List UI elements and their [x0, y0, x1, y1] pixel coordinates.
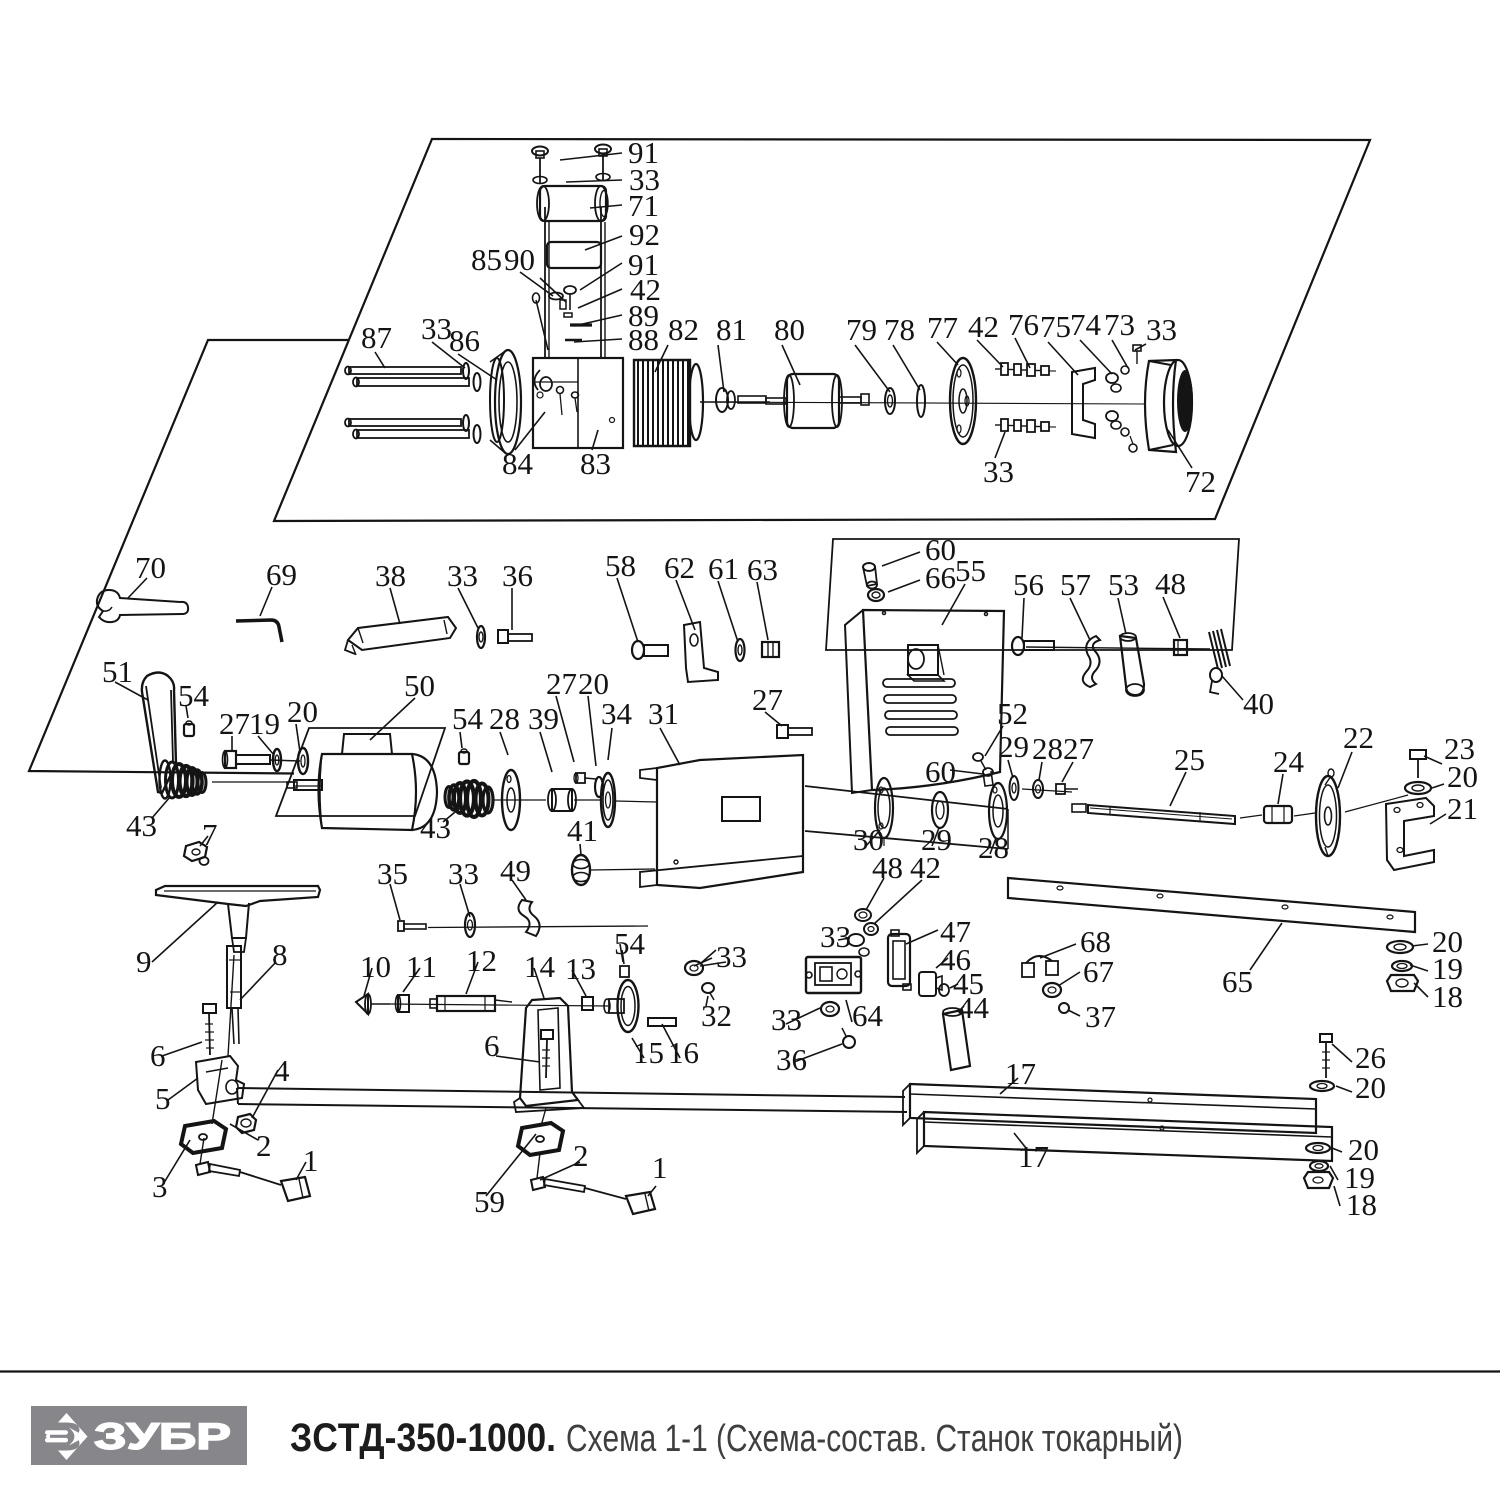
svg-text:90: 90: [504, 242, 535, 277]
svg-text:59: 59: [474, 1184, 505, 1219]
svg-text:27: 27: [752, 682, 783, 717]
svg-text:20: 20: [1447, 759, 1478, 794]
svg-text:ЗУБР: ЗУБР: [94, 1416, 231, 1457]
svg-text:27: 27: [1063, 731, 1094, 766]
svg-text:53: 53: [1108, 567, 1139, 602]
svg-text:5: 5: [155, 1081, 171, 1116]
svg-text:84: 84: [502, 446, 534, 481]
svg-text:54: 54: [452, 701, 484, 736]
svg-text:48: 48: [872, 850, 903, 885]
svg-text:15: 15: [633, 1035, 664, 1070]
svg-text:36: 36: [776, 1042, 807, 1077]
svg-text:34: 34: [601, 696, 633, 731]
svg-text:42: 42: [910, 850, 941, 885]
svg-text:33: 33: [1146, 312, 1177, 347]
svg-text:63: 63: [747, 552, 778, 587]
svg-text:77: 77: [927, 310, 958, 345]
svg-text:1: 1: [303, 1143, 319, 1178]
svg-text:16: 16: [668, 1035, 699, 1070]
svg-text:83: 83: [580, 446, 611, 481]
svg-text:8: 8: [272, 937, 288, 972]
svg-text:19: 19: [249, 706, 280, 741]
svg-text:28: 28: [489, 701, 520, 736]
svg-text:29: 29: [998, 729, 1029, 764]
svg-text:33: 33: [983, 454, 1014, 489]
svg-text:3: 3: [152, 1169, 168, 1204]
svg-text:35: 35: [377, 856, 408, 891]
svg-text:82: 82: [668, 312, 699, 347]
svg-text:40: 40: [1243, 686, 1274, 721]
svg-text:2: 2: [256, 1128, 272, 1163]
svg-text:56: 56: [1013, 567, 1044, 602]
svg-text:Схема 1-1 (Схема-состав. Стано: Схема 1-1 (Схема-состав. Станок токарный…: [566, 1418, 1183, 1460]
svg-text:48: 48: [1155, 566, 1186, 601]
svg-text:66: 66: [925, 560, 956, 595]
svg-text:60: 60: [925, 754, 956, 789]
svg-text:39: 39: [528, 701, 559, 736]
svg-text:69: 69: [266, 557, 297, 592]
svg-text:78: 78: [884, 312, 915, 347]
svg-text:43: 43: [126, 808, 157, 843]
svg-text:10: 10: [360, 949, 391, 984]
svg-text:62: 62: [664, 550, 695, 585]
svg-text:33: 33: [716, 939, 747, 974]
svg-text:24: 24: [1273, 744, 1305, 779]
svg-text:17: 17: [1018, 1139, 1049, 1174]
svg-text:7: 7: [202, 817, 218, 852]
svg-text:32: 32: [701, 998, 732, 1033]
svg-text:88: 88: [628, 322, 659, 357]
svg-text:79: 79: [846, 312, 877, 347]
svg-text:54: 54: [614, 926, 646, 961]
svg-text:33: 33: [820, 919, 851, 954]
svg-text:22: 22: [1343, 720, 1374, 755]
svg-text:28: 28: [978, 830, 1009, 865]
svg-text:61: 61: [708, 551, 739, 586]
svg-text:54: 54: [178, 678, 210, 713]
svg-text:13: 13: [565, 951, 596, 986]
svg-text:51: 51: [102, 654, 133, 689]
svg-text:9: 9: [136, 944, 152, 979]
svg-text:74: 74: [1070, 307, 1102, 342]
svg-text:64: 64: [852, 998, 884, 1033]
svg-text:27: 27: [546, 666, 577, 701]
svg-text:6: 6: [150, 1038, 166, 1073]
svg-text:75: 75: [1040, 309, 1071, 344]
svg-text:52: 52: [997, 696, 1028, 731]
svg-text:25: 25: [1174, 742, 1205, 777]
svg-text:55: 55: [955, 553, 986, 588]
svg-text:11: 11: [406, 949, 437, 984]
svg-text:33: 33: [771, 1002, 802, 1037]
svg-text:44: 44: [958, 990, 990, 1025]
svg-text:33: 33: [448, 856, 479, 891]
svg-text:86: 86: [449, 323, 480, 358]
svg-text:27: 27: [219, 706, 250, 741]
svg-text:37: 37: [1085, 999, 1116, 1034]
svg-text:42: 42: [968, 309, 999, 344]
svg-text:41: 41: [567, 813, 598, 848]
svg-text:87: 87: [361, 320, 392, 355]
svg-text:20: 20: [287, 694, 318, 729]
svg-text:14: 14: [524, 949, 556, 984]
svg-text:38: 38: [375, 558, 406, 593]
svg-text:31: 31: [648, 696, 679, 731]
svg-text:33: 33: [421, 311, 452, 346]
svg-text:17: 17: [1005, 1056, 1036, 1091]
svg-text:67: 67: [1083, 954, 1114, 989]
svg-text:ЗСТД-350-1000.: ЗСТД-350-1000.: [290, 1416, 556, 1460]
svg-text:18: 18: [1346, 1187, 1377, 1222]
svg-text:80: 80: [774, 312, 805, 347]
svg-text:49: 49: [500, 853, 531, 888]
svg-text:76: 76: [1008, 307, 1039, 342]
svg-text:1: 1: [652, 1150, 668, 1185]
svg-text:58: 58: [605, 548, 636, 583]
svg-text:2: 2: [573, 1138, 589, 1173]
svg-text:12: 12: [466, 943, 497, 978]
svg-text:50: 50: [404, 668, 435, 703]
svg-text:81: 81: [716, 312, 747, 347]
svg-text:18: 18: [1432, 979, 1463, 1014]
svg-text:4: 4: [274, 1053, 290, 1088]
svg-text:21: 21: [1447, 791, 1478, 826]
svg-text:72: 72: [1185, 464, 1216, 499]
svg-text:36: 36: [502, 558, 533, 593]
svg-text:73: 73: [1104, 307, 1135, 342]
svg-text:70: 70: [135, 550, 166, 585]
svg-text:33: 33: [447, 558, 478, 593]
svg-text:28: 28: [1032, 731, 1063, 766]
svg-text:43: 43: [420, 810, 451, 845]
svg-text:6: 6: [484, 1028, 500, 1063]
svg-text:20: 20: [1355, 1070, 1386, 1105]
svg-text:57: 57: [1060, 567, 1091, 602]
svg-text:85: 85: [471, 242, 502, 277]
svg-text:65: 65: [1222, 964, 1253, 999]
